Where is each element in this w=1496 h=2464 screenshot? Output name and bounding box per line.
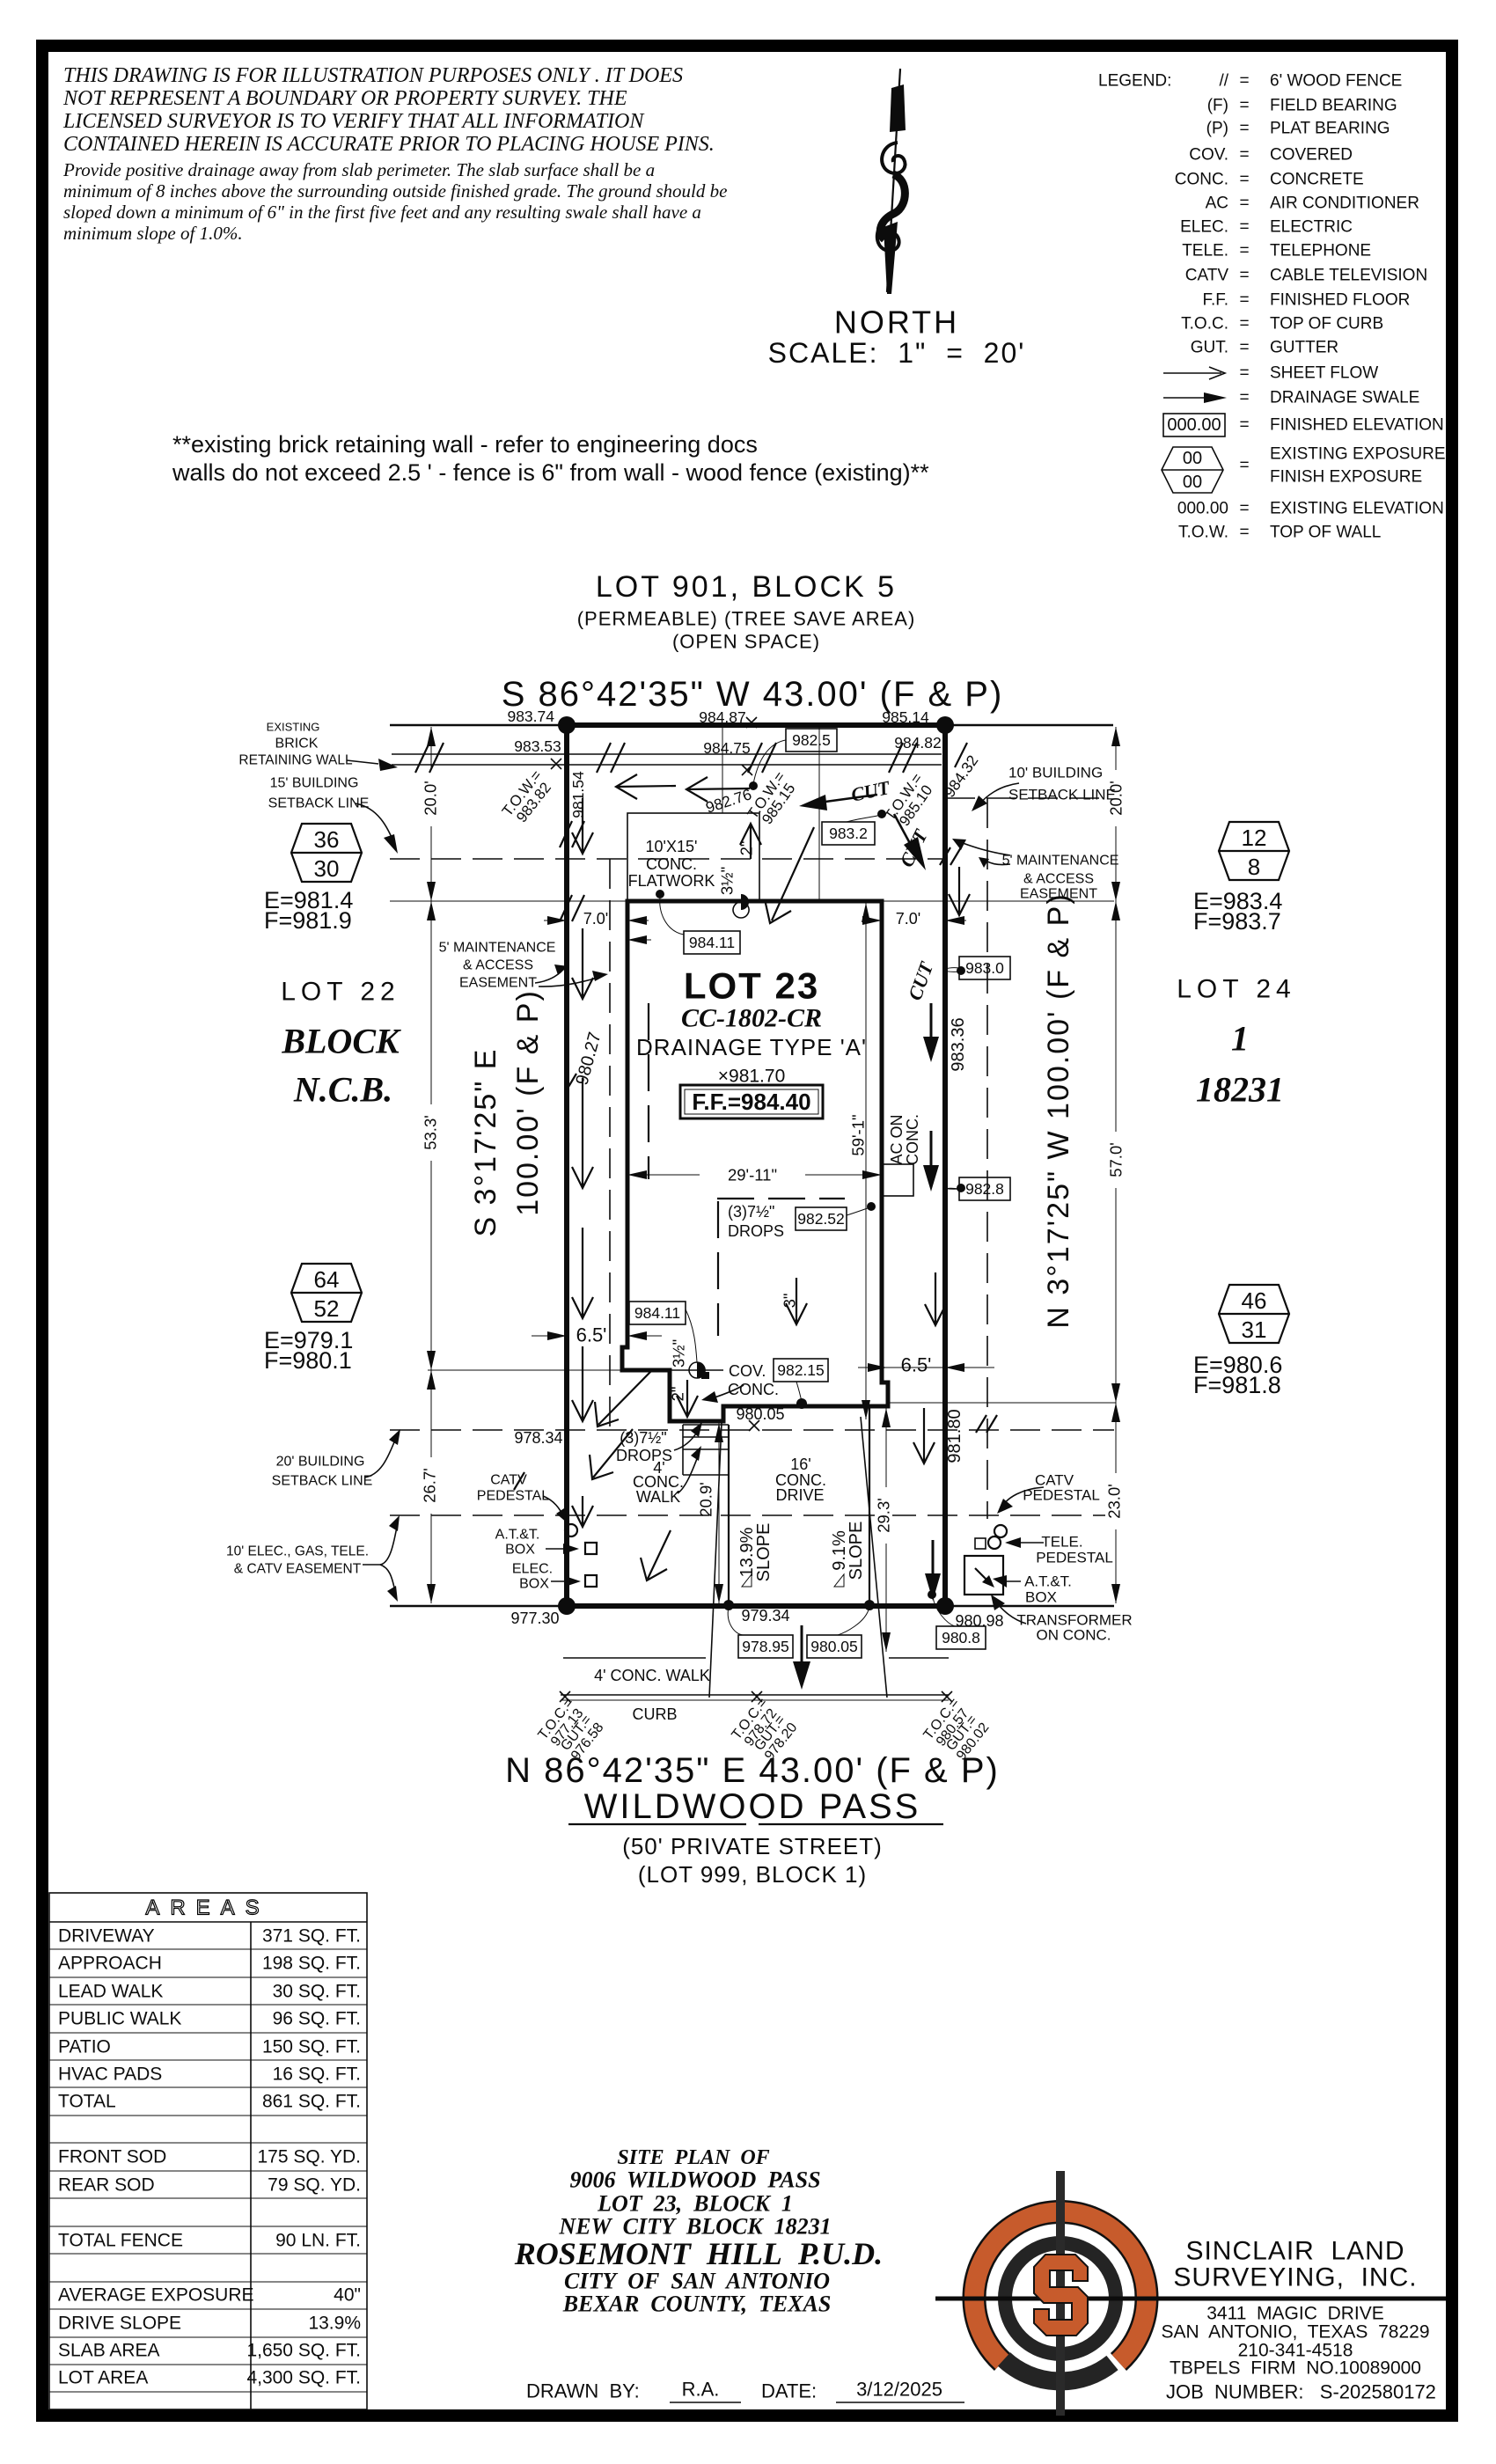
svg-text:983.74: 983.74 (507, 708, 554, 725)
svg-text:46: 46 (1242, 1287, 1267, 1314)
svg-text:sloped down a minimum of 6" in: sloped down a minimum of 6" in the first… (63, 202, 701, 223)
svg-text:30 SQ. FT.: 30 SQ. FT. (273, 1982, 361, 2002)
svg-text:FINISH EXPOSURE: FINISH EXPOSURE (1270, 468, 1422, 487)
svg-text:×981.70: ×981.70 (718, 1067, 786, 1087)
svg-text:371 SQ. FT.: 371 SQ. FT. (262, 1926, 361, 1947)
svg-text:DRIVE SLOPE: DRIVE SLOPE (58, 2314, 181, 2334)
svg-text:& ACCESS: & ACCESS (1023, 872, 1094, 887)
svg-text:T.O.W.=985.15: T.O.W.=985.15 (744, 768, 800, 831)
svg-text:A.T.&T.: A.T.&T. (495, 1528, 540, 1543)
svg-text:978.34: 978.34 (514, 1429, 562, 1447)
svg-text:7.0': 7.0' (896, 910, 920, 928)
svg-text:=: = (1239, 457, 1249, 475)
svg-text:COV.: COV. (729, 1362, 766, 1380)
svg-text:983.2: 983.2 (829, 825, 868, 842)
svg-text:minimum of 8 inches above the: minimum of 8 inches above the surroundin… (63, 180, 727, 202)
svg-text:PEDESTAL: PEDESTAL (1023, 1487, 1100, 1504)
svg-text:SETBACK LINE: SETBACK LINE (272, 1474, 373, 1489)
svg-text:LOT AREA: LOT AREA (58, 2368, 148, 2388)
svg-text:**existing brick retaining wal: **existing brick retaining wall - refer … (172, 431, 758, 458)
svg-text:DRIVEWAY: DRIVEWAY (58, 1926, 155, 1947)
svg-text:CONC.: CONC. (1175, 171, 1228, 189)
svg-text:TELE.: TELE. (1182, 242, 1228, 260)
svg-text:GUTTER: GUTTER (1270, 339, 1338, 357)
svg-text:983.0: 983.0 (965, 959, 1004, 977)
svg-text:4' CONC. WALK: 4' CONC. WALK (594, 1667, 710, 1684)
svg-text:PLAT BEARING: PLAT BEARING (1270, 120, 1390, 138)
svg-text:TBPELS FIRM NO.10089000: TBPELS FIRM NO.10089000 (1170, 2358, 1421, 2379)
svg-text:AC ON: AC ON (888, 1114, 906, 1164)
svg-text:F=981.9: F=981.9 (264, 907, 352, 934)
svg-text:980.98: 980.98 (955, 1612, 1003, 1630)
svg-text:APPROACH: APPROACH (58, 1954, 162, 1974)
svg-text:984.11: 984.11 (689, 934, 735, 951)
svg-text:CONTAINED HEREIN IS ACCURATE P: CONTAINED HEREIN IS ACCURATE PRIOR TO PL… (63, 133, 715, 156)
svg-text:=: = (1239, 524, 1249, 542)
svg-text:=: = (1239, 416, 1249, 435)
svg-text:985.14: 985.14 (882, 708, 929, 726)
svg-text:TELE.: TELE. (1041, 1534, 1082, 1551)
svg-text:198 SQ. FT.: 198 SQ. FT. (262, 1954, 361, 1974)
svg-text:3411 MAGIC DRIVE: 3411 MAGIC DRIVE (1206, 2304, 1384, 2324)
svg-text:=: = (1239, 389, 1249, 407)
svg-text:N.C.B.: N.C.B. (293, 1070, 392, 1110)
svg-text:2": 2" (737, 841, 756, 856)
svg-text:20.0': 20.0' (422, 781, 440, 816)
svg-text:AREAS: AREAS (145, 1896, 269, 1920)
svg-text:A.T.&T.: A.T.&T. (1024, 1573, 1072, 1590)
svg-text:980.27: 980.27 (572, 1030, 605, 1088)
svg-text:DATE:: DATE: (761, 2380, 817, 2402)
svg-text:LOT 23: LOT 23 (684, 965, 819, 1007)
svg-text:000.00: 000.00 (1177, 500, 1228, 518)
svg-text:AIR CONDITIONER: AIR CONDITIONER (1270, 194, 1419, 213)
svg-text:10' BUILDING: 10' BUILDING (1008, 765, 1103, 781)
svg-text:861 SQ. FT.: 861 SQ. FT. (262, 2092, 361, 2112)
svg-text:PEDESTAL: PEDESTAL (1036, 1550, 1113, 1566)
svg-text:984.11: 984.11 (634, 1304, 680, 1322)
svg-text:CURB: CURB (632, 1705, 677, 1723)
svg-text:BOX: BOX (519, 1577, 549, 1592)
svg-text:79 SQ. YD.: 79 SQ. YD. (268, 2175, 361, 2196)
svg-text:N 3°17'25" W 100.00' (F & P): N 3°17'25" W 100.00' (F & P) (1042, 892, 1075, 1328)
svg-text:980.05: 980.05 (736, 1405, 784, 1423)
svg-text:ELEC.: ELEC. (512, 1562, 553, 1577)
svg-text:40": 40" (334, 2285, 361, 2306)
svg-text:LOT 22: LOT 22 (281, 978, 400, 1007)
svg-text:31: 31 (1242, 1316, 1267, 1343)
svg-text:AC: AC (1206, 194, 1228, 213)
svg-text:ELEC.: ELEC. (1180, 218, 1228, 237)
svg-text:NORTH: NORTH (834, 304, 959, 341)
svg-text:BOX: BOX (1025, 1589, 1057, 1606)
svg-text:COVERED: COVERED (1270, 146, 1353, 165)
svg-text:TOP OF WALL: TOP OF WALL (1270, 524, 1381, 542)
svg-text:=: = (1239, 364, 1249, 383)
svg-text:LOT 23, BLOCK 1: LOT 23, BLOCK 1 (597, 2191, 793, 2217)
svg-text:1: 1 (1231, 1019, 1249, 1059)
svg-text:SCALE: 1" = 20': SCALE: 1" = 20' (768, 337, 1026, 369)
svg-text:982.15: 982.15 (777, 1361, 825, 1379)
svg-text:983.36: 983.36 (949, 1017, 968, 1071)
svg-text:F=983.7: F=983.7 (1193, 908, 1281, 935)
svg-text:SAN ANTONIO, TEXAS 78229: SAN ANTONIO, TEXAS 78229 (1161, 2322, 1429, 2343)
svg-text:CONC.: CONC. (904, 1114, 921, 1165)
svg-text:LICENSED SURVEYOR IS TO VERIFY: LICENSED SURVEYOR IS TO VERIFY THAT ALL … (62, 110, 645, 133)
svg-text:BLOCK: BLOCK (281, 1022, 401, 1061)
svg-text:6.5': 6.5' (901, 1354, 932, 1376)
svg-text:PATIO: PATIO (58, 2037, 111, 2057)
svg-text:REAR SOD: REAR SOD (58, 2175, 155, 2196)
svg-text:26.7': 26.7' (421, 1468, 439, 1503)
svg-text:CUT: CUT (904, 958, 938, 1003)
svg-text:R.A.: R.A. (682, 2379, 720, 2401)
svg-text:PEDESTAL: PEDESTAL (477, 1489, 550, 1504)
svg-text:=: = (1239, 291, 1249, 310)
svg-text:2": 2" (669, 1387, 687, 1402)
svg-text:5' MAINTENANCE: 5' MAINTENANCE (439, 941, 556, 956)
svg-text:walls do not exceed 2.5 ' - f: walls do not exceed 2.5 ' - fence is 6" … (172, 459, 929, 486)
svg-text:SLOPE: SLOPE (847, 1522, 866, 1580)
svg-text:FINISHED ELEVATION: FINISHED ELEVATION (1270, 416, 1444, 435)
svg-text:=: = (1239, 146, 1249, 165)
svg-text:=: = (1239, 242, 1249, 260)
svg-text:JOB NUMBER: S-202580172: JOB NUMBER: S-202580172 (1166, 2381, 1436, 2403)
svg-text:FLATWORK: FLATWORK (628, 872, 715, 890)
svg-text:EXISTING: EXISTING (267, 721, 320, 734)
svg-text:=: = (1239, 171, 1249, 189)
svg-text:3": 3" (781, 1294, 799, 1309)
svg-text:984.75: 984.75 (703, 739, 751, 757)
svg-text:SITE PLAN OF: SITE PLAN OF (617, 2146, 769, 2169)
svg-text:(PERMEABLE) (TREE SAVE AREA): (PERMEABLE) (TREE SAVE AREA) (577, 608, 916, 630)
svg-text:COV.: COV. (1189, 146, 1228, 165)
svg-text:FIELD BEARING: FIELD BEARING (1270, 97, 1397, 115)
svg-text:SINCLAIR LAND: SINCLAIR LAND (1185, 2237, 1404, 2266)
svg-text:150 SQ. FT.: 150 SQ. FT. (262, 2037, 361, 2057)
svg-text:6.5': 6.5' (576, 1324, 607, 1346)
svg-text:SURVEYING, INC.: SURVEYING, INC. (1173, 2263, 1417, 2292)
svg-text:90 LN. FT.: 90 LN. FT. (275, 2231, 361, 2251)
svg-text:982.5: 982.5 (792, 731, 831, 749)
svg-text:979.34: 979.34 (741, 1607, 789, 1624)
svg-text:982.8: 982.8 (965, 1180, 1004, 1198)
svg-text:(3)7½": (3)7½" (620, 1429, 666, 1447)
svg-text:F=981.8: F=981.8 (1193, 1372, 1281, 1398)
svg-text:10'X15': 10'X15' (646, 838, 698, 855)
svg-text:983.53: 983.53 (514, 737, 561, 755)
svg-text:NOT REPRESENT A BOUNDARY OR PR: NOT REPRESENT A BOUNDARY OR PROPERTY SUR… (62, 87, 627, 110)
svg-text:GUT.: GUT. (1191, 339, 1228, 357)
svg-text:FINISHED FLOOR: FINISHED FLOOR (1270, 291, 1410, 310)
svg-text:53.3': 53.3' (422, 1115, 440, 1150)
svg-text:DRIVE: DRIVE (775, 1486, 824, 1504)
svg-text:PUBLIC WALK: PUBLIC WALK (58, 2009, 181, 2029)
svg-text:15' BUILDING: 15' BUILDING (270, 776, 359, 791)
svg-text:BOX: BOX (505, 1543, 535, 1558)
svg-text:9006 WILDWOOD PASS: 9006 WILDWOOD PASS (569, 2167, 820, 2193)
svg-text:57.0': 57.0' (1107, 1142, 1126, 1177)
svg-text:CONCRETE: CONCRETE (1270, 171, 1364, 189)
svg-text:SETBACK LINE: SETBACK LINE (1008, 787, 1116, 803)
svg-text:982.52: 982.52 (797, 1210, 845, 1228)
svg-text:(P): (P) (1206, 120, 1228, 138)
svg-text:3/12/2025: 3/12/2025 (856, 2379, 942, 2401)
svg-text:TOP OF CURB: TOP OF CURB (1270, 315, 1383, 334)
svg-text:980.05: 980.05 (810, 1638, 858, 1655)
svg-text:LEAD WALK: LEAD WALK (58, 1982, 163, 2002)
svg-text:(50' PRIVATE STREET): (50' PRIVATE STREET) (622, 1833, 883, 1859)
svg-text:F.F.=984.40: F.F.=984.40 (692, 1089, 810, 1115)
svg-text:00: 00 (1183, 473, 1202, 492)
svg-text:DRAINAGE TYPE 'A': DRAINAGE TYPE 'A' (636, 1034, 867, 1060)
svg-text:29'-11": 29'-11" (728, 1166, 777, 1184)
svg-text:T.O.C.: T.O.C. (1181, 315, 1228, 334)
svg-text:SETBACK LINE: SETBACK LINE (268, 796, 370, 811)
svg-text:1,650 SQ. FT.: 1,650 SQ. FT. (246, 2341, 361, 2361)
svg-text:CONC.: CONC. (646, 855, 697, 873)
svg-text:(OPEN SPACE): (OPEN SPACE) (672, 631, 820, 653)
svg-text:LOT 24: LOT 24 (1177, 975, 1296, 1004)
svg-text:RETAINING WALL: RETAINING WALL (238, 753, 353, 768)
svg-text:T.O.W.=985.10: T.O.W.=985.10 (881, 770, 937, 832)
svg-text:29.3': 29.3' (875, 1498, 893, 1533)
svg-text:981.80: 981.80 (945, 1409, 964, 1463)
svg-text:981.54: 981.54 (569, 771, 587, 818)
svg-text:18231: 18231 (1196, 1070, 1284, 1110)
svg-text:TOTAL FENCE: TOTAL FENCE (58, 2231, 183, 2251)
svg-text:984.87: 984.87 (699, 708, 746, 726)
svg-text:EASEMENT: EASEMENT (459, 976, 537, 991)
svg-text:=: = (1239, 218, 1249, 237)
svg-text:30: 30 (314, 855, 340, 882)
svg-text:LEGEND:: LEGEND: (1098, 72, 1171, 91)
svg-text:SLOPE: SLOPE (754, 1523, 774, 1582)
svg-text:4,300 SQ. FT.: 4,300 SQ. FT. (246, 2368, 361, 2388)
svg-text:ROSEMONT HILL P.U.D.: ROSEMONT HILL P.U.D. (514, 2236, 883, 2271)
svg-text:BRICK: BRICK (275, 737, 319, 752)
svg-text:WILDWOOD PASS: WILDWOOD PASS (584, 1787, 921, 1826)
svg-text:(F): (F) (1207, 97, 1228, 115)
svg-text:12: 12 (1242, 825, 1267, 851)
svg-text:00: 00 (1183, 449, 1202, 468)
svg-text:=: = (1239, 339, 1249, 357)
svg-text:CUT: CUT (849, 776, 893, 806)
svg-text:SHEET FLOW: SHEET FLOW (1270, 364, 1378, 383)
svg-text:(3)7½": (3)7½" (728, 1203, 774, 1221)
svg-text:=: = (1239, 97, 1249, 115)
svg-text:CUT: CUT (895, 825, 932, 870)
svg-text:16 SQ. FT.: 16 SQ. FT. (273, 2064, 361, 2085)
svg-text:=: = (1239, 194, 1249, 213)
svg-text:ELECTRIC: ELECTRIC (1270, 218, 1353, 237)
svg-text:CATV: CATV (490, 1473, 527, 1488)
svg-text:N 86°42'35" E 43.00' (F & P): N 86°42'35" E 43.00' (F & P) (505, 1751, 1000, 1790)
svg-text:T.O.W.=983.82: T.O.W.=983.82 (498, 766, 556, 828)
svg-text:=: = (1239, 120, 1249, 138)
svg-text:DRAWN BY:: DRAWN BY: (526, 2380, 640, 2402)
svg-text:=: = (1239, 315, 1249, 334)
svg-text:3½": 3½" (670, 1339, 688, 1368)
svg-text:AVERAGE EXPOSURE: AVERAGE EXPOSURE (58, 2285, 254, 2306)
svg-text:64: 64 (314, 1266, 340, 1293)
svg-text:minimum slope of 1.0%.: minimum slope of 1.0%. (63, 223, 243, 244)
svg-text:59'-1": 59'-1" (849, 1114, 868, 1155)
svg-text:20.0': 20.0' (1107, 781, 1126, 816)
svg-text:977.30: 977.30 (510, 1610, 559, 1627)
svg-text:ON CONC.: ON CONC. (1037, 1627, 1111, 1644)
svg-text:F=980.1: F=980.1 (264, 1347, 352, 1374)
svg-text:& ACCESS: & ACCESS (463, 958, 533, 973)
svg-text:EXISTING ELEVATION: EXISTING ELEVATION (1270, 500, 1444, 518)
svg-text:23.0': 23.0' (1105, 1484, 1124, 1519)
svg-text:13.9%: 13.9% (308, 2314, 361, 2334)
svg-text:980.8: 980.8 (942, 1629, 980, 1646)
svg-text:100.00' (F & P): 100.00' (F & P) (511, 989, 545, 1216)
svg-text:S 3°17'25" E: S 3°17'25" E (469, 1048, 502, 1237)
svg-text:96 SQ. FT.: 96 SQ. FT. (273, 2009, 361, 2029)
svg-text://: // (1219, 72, 1228, 91)
svg-text:CABLE TELEVISION: CABLE TELEVISION (1270, 267, 1427, 285)
svg-text:HVAC PADS: HVAC PADS (58, 2064, 162, 2085)
svg-text:20' BUILDING: 20' BUILDING (276, 1455, 365, 1470)
svg-text:& CATV EASEMENT: & CATV EASEMENT (234, 1562, 362, 1577)
svg-text:978.95: 978.95 (742, 1638, 789, 1655)
svg-text:CITY OF SAN ANTONIO: CITY OF SAN ANTONIO (564, 2269, 830, 2294)
svg-text:=: = (1239, 267, 1249, 285)
svg-text:DROPS: DROPS (728, 1222, 784, 1240)
svg-text:EXISTING EXPOSURE: EXISTING EXPOSURE (1270, 445, 1446, 464)
svg-text:52: 52 (314, 1295, 340, 1322)
svg-text:LOT 901, BLOCK 5: LOT 901, BLOCK 5 (596, 570, 897, 604)
svg-text:3½": 3½" (718, 867, 737, 895)
svg-text:=: = (1239, 72, 1249, 91)
svg-text:7.0': 7.0' (583, 910, 608, 928)
svg-text:TOTAL: TOTAL (58, 2092, 116, 2112)
svg-text:DRAINAGE SWALE: DRAINAGE SWALE (1270, 389, 1419, 407)
svg-text:F.F.: F.F. (1202, 291, 1228, 310)
svg-text:5' MAINTENANCE: 5' MAINTENANCE (1002, 854, 1119, 869)
svg-text:TELEPHONE: TELEPHONE (1270, 242, 1371, 260)
svg-text:20.9': 20.9' (697, 1482, 715, 1517)
svg-text:WALK: WALK (636, 1488, 680, 1506)
svg-text:36: 36 (314, 826, 340, 853)
svg-text:000.00: 000.00 (1167, 415, 1221, 435)
svg-text:8: 8 (1248, 854, 1260, 880)
svg-text:THIS DRAWING IS FOR ILLUSTRATI: THIS DRAWING IS FOR ILLUSTRATION PURPOSE… (63, 64, 683, 87)
svg-text:FRONT SOD: FRONT SOD (58, 2147, 166, 2167)
svg-text:10' ELEC., GAS, TELE.: 10' ELEC., GAS, TELE. (226, 1544, 369, 1559)
svg-text:984.82: 984.82 (894, 734, 942, 752)
svg-text:(LOT 999, BLOCK 1): (LOT 999, BLOCK 1) (638, 1861, 867, 1888)
svg-text:6' WOOD FENCE: 6' WOOD FENCE (1270, 72, 1402, 91)
svg-text:175 SQ. YD.: 175 SQ. YD. (257, 2147, 361, 2167)
svg-text:Provide positive drainage away: Provide positive drainage away from slab… (62, 159, 655, 180)
svg-text:=: = (1239, 500, 1249, 518)
svg-text:CC-1802-CR: CC-1802-CR (681, 1004, 822, 1033)
svg-text:BEXAR COUNTY, TEXAS: BEXAR COUNTY, TEXAS (562, 2292, 832, 2317)
svg-text:SLAB AREA: SLAB AREA (58, 2341, 160, 2361)
svg-text:CATV: CATV (1185, 267, 1229, 285)
svg-text:T.O.W.: T.O.W. (1178, 524, 1228, 542)
svg-text:16': 16' (790, 1456, 810, 1473)
